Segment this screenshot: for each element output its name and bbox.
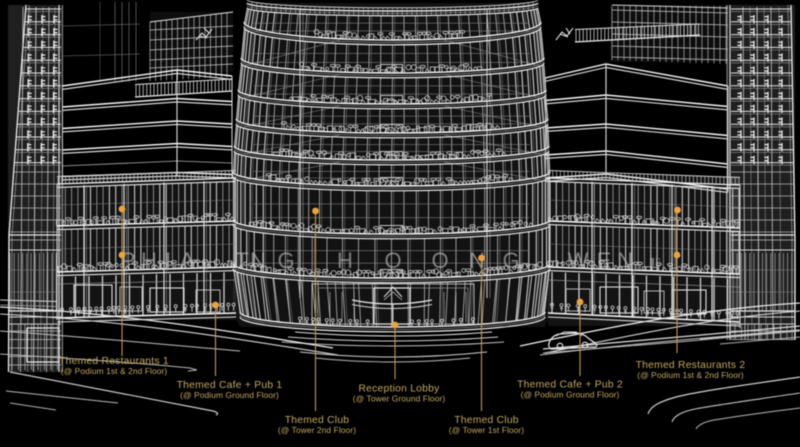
svg-text:▮▯: ▮▯ bbox=[649, 256, 661, 268]
svg-text:G: G bbox=[277, 248, 294, 273]
svg-text:A: A bbox=[180, 248, 195, 273]
svg-text:O: O bbox=[431, 248, 448, 273]
svg-text:(@ Podium Ground Floor): (@ Podium Ground Floor) bbox=[521, 390, 620, 400]
svg-text:H: H bbox=[141, 248, 157, 273]
svg-text:N: N bbox=[250, 248, 266, 273]
svg-text:N: N bbox=[617, 248, 633, 273]
svg-text:T: T bbox=[235, 248, 248, 273]
svg-text:(@ Podium 1st & 2nd Floor): (@ Podium 1st & 2nd Floor) bbox=[637, 370, 744, 380]
svg-text:(@ Tower 2nd Floor): (@ Tower 2nd Floor) bbox=[278, 425, 356, 435]
svg-text:(@ Tower 1st Floor): (@ Tower 1st Floor) bbox=[449, 425, 525, 435]
svg-text:(@ Podium Ground Floor): (@ Podium Ground Floor) bbox=[180, 390, 279, 400]
svg-text:(@ Podium 1st & 2nd Floor): (@ Podium 1st & 2nd Floor) bbox=[61, 366, 168, 376]
svg-text:H: H bbox=[337, 248, 353, 273]
svg-text:O: O bbox=[384, 248, 401, 273]
svg-text:(@ Tower Ground Floor): (@ Tower Ground Floor) bbox=[353, 394, 446, 404]
svg-text:G: G bbox=[502, 248, 519, 273]
svg-text:I: I bbox=[165, 248, 171, 273]
svg-text:E: E bbox=[597, 248, 612, 273]
svg-text:W: W bbox=[568, 248, 589, 273]
